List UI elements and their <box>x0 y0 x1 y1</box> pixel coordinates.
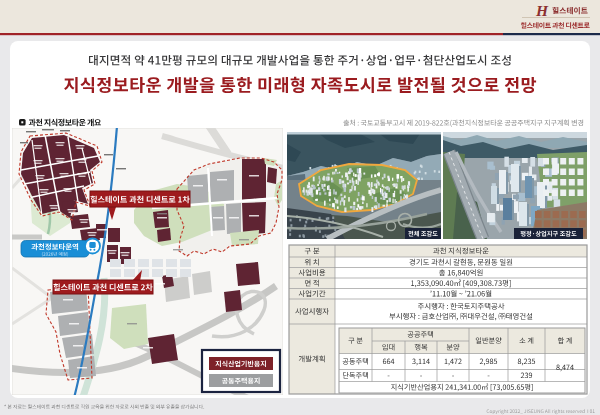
svg-text:H: H <box>535 2 549 19</box>
